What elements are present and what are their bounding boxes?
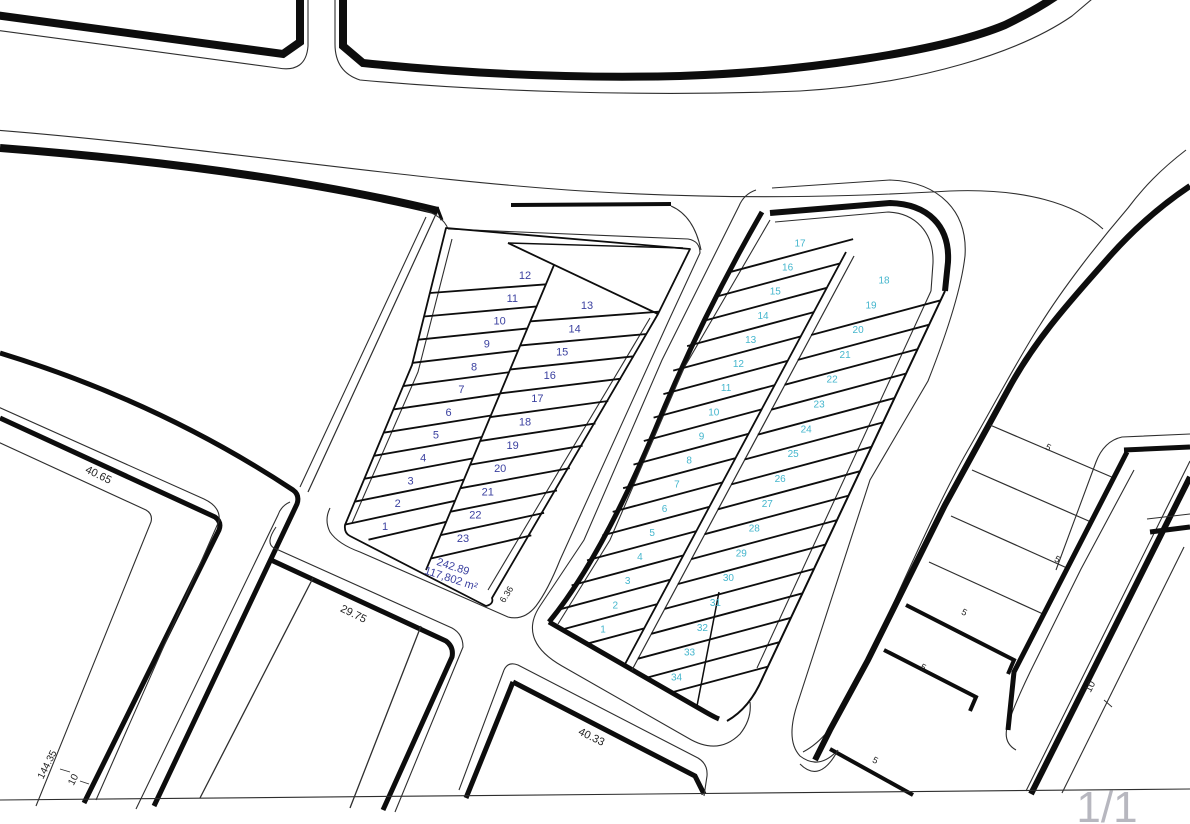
svg-text:2: 2: [395, 498, 401, 510]
svg-text:15: 15: [556, 347, 568, 359]
svg-text:11: 11: [721, 383, 732, 394]
svg-text:19: 19: [506, 440, 518, 452]
svg-text:21: 21: [840, 350, 852, 361]
svg-text:9: 9: [484, 338, 490, 350]
svg-text:30: 30: [723, 573, 735, 584]
svg-text:28: 28: [749, 524, 761, 535]
svg-text:6: 6: [662, 504, 668, 515]
svg-text:14: 14: [568, 323, 580, 335]
svg-text:2: 2: [613, 600, 619, 611]
svg-text:22: 22: [827, 375, 839, 386]
svg-text:21: 21: [482, 486, 494, 498]
svg-text:32: 32: [697, 623, 709, 634]
svg-text:5: 5: [649, 528, 655, 539]
svg-text:3: 3: [625, 576, 631, 587]
svg-text:24: 24: [801, 424, 813, 435]
svg-text:1: 1: [382, 521, 388, 533]
svg-text:3: 3: [407, 475, 413, 487]
svg-text:16: 16: [782, 263, 794, 274]
svg-text:4: 4: [637, 552, 643, 563]
svg-text:9: 9: [699, 432, 705, 443]
svg-text:20: 20: [494, 463, 506, 475]
svg-text:27: 27: [762, 499, 774, 510]
svg-text:5: 5: [433, 430, 439, 442]
svg-text:1/1: 1/1: [1076, 783, 1137, 824]
svg-text:6: 6: [446, 407, 452, 419]
svg-text:8: 8: [686, 456, 692, 467]
svg-text:12: 12: [519, 270, 531, 282]
svg-text:7: 7: [458, 384, 464, 396]
svg-text:26: 26: [775, 474, 787, 485]
svg-text:13: 13: [581, 300, 593, 312]
svg-text:31: 31: [710, 598, 722, 609]
svg-text:33: 33: [684, 648, 696, 659]
svg-text:23: 23: [814, 400, 826, 411]
svg-text:20: 20: [853, 325, 865, 336]
svg-text:25: 25: [788, 449, 800, 460]
svg-text:7: 7: [674, 480, 680, 491]
svg-text:10: 10: [708, 407, 720, 418]
svg-text:13: 13: [745, 335, 757, 346]
svg-text:17: 17: [531, 393, 543, 405]
svg-text:29: 29: [736, 548, 748, 559]
svg-text:15: 15: [770, 287, 782, 298]
svg-text:18: 18: [519, 417, 531, 429]
svg-text:10: 10: [493, 316, 505, 328]
svg-text:16: 16: [544, 370, 556, 382]
svg-text:17: 17: [794, 238, 806, 249]
svg-text:8: 8: [471, 361, 477, 373]
svg-text:22: 22: [469, 510, 481, 522]
svg-text:1: 1: [600, 625, 606, 636]
svg-text:11: 11: [507, 293, 518, 305]
svg-text:23: 23: [457, 533, 469, 545]
svg-text:19: 19: [865, 300, 877, 311]
svg-text:34: 34: [671, 673, 683, 684]
svg-text:14: 14: [757, 311, 769, 322]
svg-text:4: 4: [420, 453, 426, 465]
svg-text:12: 12: [733, 359, 745, 370]
svg-text:18: 18: [878, 276, 890, 287]
